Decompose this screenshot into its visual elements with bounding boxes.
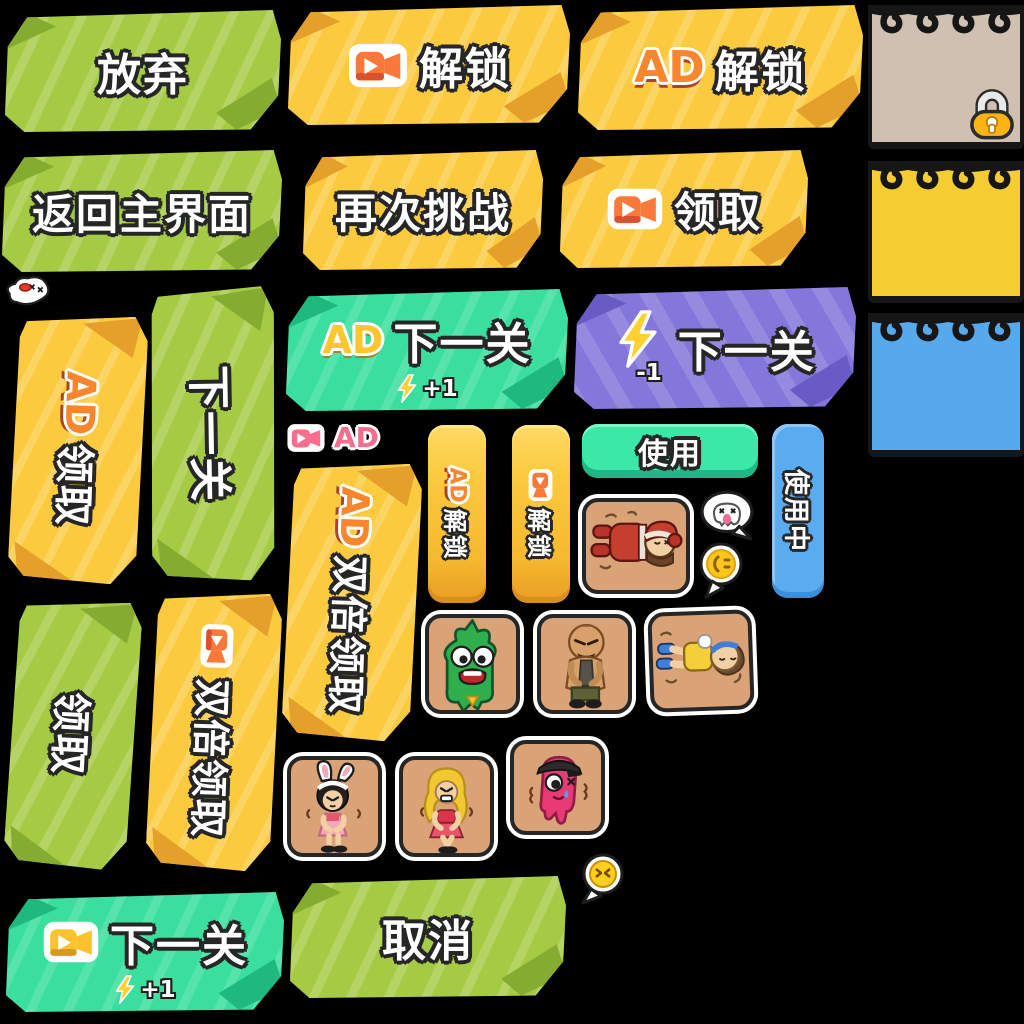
squint-emoji-speech-bubble-icon <box>577 853 627 907</box>
video-camera-icon <box>347 42 409 89</box>
energy-next-level-label: 下一关 <box>678 316 816 380</box>
blue-notepad-panel <box>868 314 1024 457</box>
green-monster-character <box>429 616 516 712</box>
ad-prefix: AD <box>323 318 384 362</box>
locked-notepad-panel <box>868 6 1024 149</box>
paper-fold <box>204 286 274 334</box>
ad-unlock-pill-button[interactable]: AD 解锁 <box>428 425 486 603</box>
character-card-green-monster[interactable] <box>421 610 524 718</box>
video-claim-button[interactable]: 领取 <box>560 150 808 268</box>
blonde-girl-character <box>403 758 490 855</box>
next-level-strip-button[interactable]: 下一关 <box>147 286 278 582</box>
retry-button[interactable]: 再次挑战 <box>303 150 543 270</box>
ad-prefix: AD <box>445 467 470 502</box>
video-claim-label: 领取 <box>674 179 762 240</box>
paper-fold <box>152 534 222 582</box>
ghost-icon <box>4 274 50 310</box>
energy-cost: +1 <box>140 977 175 1003</box>
ad-video-badge-label: AD <box>334 421 379 454</box>
bunny-girl-character <box>291 758 378 855</box>
torn-paper-binding <box>868 313 1024 343</box>
coin-speech-bubble-icon <box>698 541 744 601</box>
ad-prefix: AD <box>55 370 103 436</box>
sleeping-girl-character <box>651 615 750 706</box>
in-use-label: 使用中 <box>780 469 817 553</box>
ad-claim-strip-label: 领取 <box>46 442 107 528</box>
ad-prefix: AD <box>332 486 378 548</box>
claim-strip-button[interactable]: 领取 <box>3 597 143 871</box>
game-ui-sprite-sheet: 放弃 解锁 AD 解锁 返回主界面 <box>0 0 1024 1024</box>
paper-fold <box>75 315 149 360</box>
ad-video-badge: AD <box>286 421 379 454</box>
give-up-label: 放弃 <box>97 39 189 103</box>
ad-double-claim-strip-label: 双倍领取 <box>321 555 382 717</box>
energy-next-level-button[interactable]: -1 下一关 <box>574 287 856 409</box>
paper-fold <box>3 822 74 868</box>
in-use-button[interactable]: 使用中 <box>772 424 824 598</box>
ad-next-level-label: 下一关 <box>393 308 531 372</box>
video-unlock-pill-label: 解锁 <box>524 508 559 560</box>
video-unlock-label: 解锁 <box>419 33 511 97</box>
ad-next-level-button[interactable]: AD 下一关 +1 <box>286 289 568 411</box>
character-card-santa[interactable] <box>578 494 694 598</box>
ad-unlock-button[interactable]: AD 解锁 <box>578 5 863 130</box>
video-camera-icon <box>528 468 554 502</box>
lightning-bolt-icon <box>396 374 418 403</box>
ad-unlock-pill-label: 解锁 <box>440 509 475 561</box>
yellow-notepad-panel <box>868 162 1024 303</box>
ad-prefix: AD <box>634 42 705 93</box>
retry-label: 再次挑战 <box>335 180 511 241</box>
cancel-label: 取消 <box>382 905 474 969</box>
character-card-pink-monster[interactable] <box>506 736 609 839</box>
energy-cost: +1 <box>422 376 457 402</box>
next-level-strip-label: 下一关 <box>180 364 246 503</box>
paper-fold <box>71 600 142 646</box>
cancel-button[interactable]: 取消 <box>290 876 566 998</box>
video-unlock-pill-button[interactable]: 解锁 <box>512 425 570 603</box>
bald-man-character <box>541 616 628 712</box>
ad-claim-strip-button[interactable]: AD 领取 <box>7 313 148 585</box>
torn-paper-binding <box>868 5 1024 35</box>
character-card-sleeping-girl[interactable] <box>643 605 759 717</box>
video-camera-icon <box>199 622 236 669</box>
double-claim-strip-button[interactable]: 双倍领取 <box>145 590 283 872</box>
video-next-level-label: 下一关 <box>110 910 248 974</box>
video-camera-icon <box>42 920 100 964</box>
ad-double-claim-strip-button[interactable]: AD 双倍领取 <box>281 460 423 742</box>
video-unlock-button[interactable]: 解锁 <box>288 5 570 125</box>
video-camera-icon <box>286 423 326 453</box>
use-button[interactable]: 使用 <box>582 424 758 478</box>
character-card-blonde-girl[interactable] <box>395 752 498 861</box>
character-card-bunny-girl[interactable] <box>283 752 386 861</box>
back-to-main-label: 返回主界面 <box>32 181 252 242</box>
pink-monster-character <box>514 743 601 833</box>
double-claim-strip-label: 双倍领取 <box>183 678 244 840</box>
video-camera-icon <box>606 187 664 231</box>
energy-cost: -1 <box>636 360 662 386</box>
character-card-bald-man[interactable] <box>533 610 636 718</box>
video-next-level-button[interactable]: 下一关 +1 <box>6 892 284 1012</box>
use-label: 使用 <box>638 429 702 473</box>
ad-unlock-label: 解锁 <box>715 36 807 100</box>
paper-fold <box>7 538 81 583</box>
santa-character <box>586 500 686 592</box>
claim-strip-label: 领取 <box>42 691 104 778</box>
torn-paper-binding <box>868 161 1024 191</box>
ghost-speech-bubble-icon <box>700 490 756 542</box>
padlock-icon <box>966 88 1018 140</box>
back-to-main-button[interactable]: 返回主界面 <box>2 150 282 272</box>
lightning-bolt-icon <box>114 975 136 1004</box>
give-up-button[interactable]: 放弃 <box>5 10 281 132</box>
